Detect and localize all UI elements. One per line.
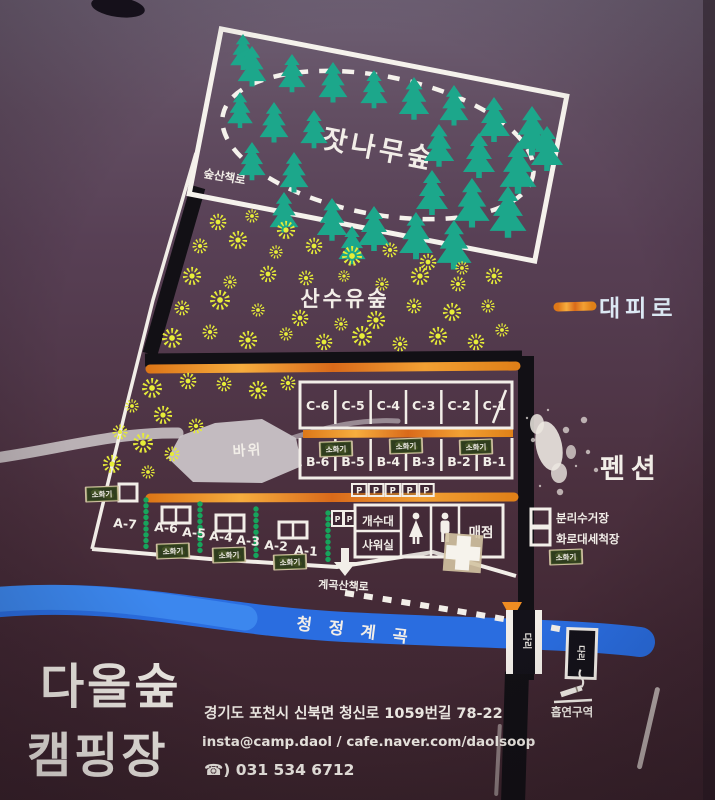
fire-extinguisher-label: 소화기 bbox=[162, 546, 183, 557]
site-label: C-5 bbox=[341, 398, 364, 413]
site-label: A-2 bbox=[264, 537, 289, 554]
black-road-top bbox=[145, 357, 522, 360]
smoking-area-label: 흡연구역 bbox=[551, 705, 593, 719]
fire-extinguisher-badge: 소화기 bbox=[459, 438, 494, 455]
fire-extinguisher-label: 소화기 bbox=[279, 557, 300, 568]
bridge-2-label: 다리 bbox=[575, 645, 587, 661]
valley-trail-label: 계곡산책로 bbox=[318, 577, 369, 594]
fire-extinguisher-label: 소화기 bbox=[218, 550, 239, 561]
site-label: B-1 bbox=[483, 454, 506, 469]
fire-extinguisher-label: 소화기 bbox=[91, 489, 112, 500]
parking-label: P bbox=[347, 515, 353, 524]
parking-label: P bbox=[356, 487, 362, 497]
evacuation-road-top bbox=[150, 366, 516, 369]
pension-label: 펜션 bbox=[600, 454, 662, 485]
parking-label: P bbox=[406, 487, 412, 497]
c-row-sites: C-6C-5C-4C-3C-2C-1 bbox=[306, 390, 506, 424]
legend-evacuation-label: 대피로 bbox=[599, 296, 677, 322]
fire-extinguisher-label: 소화기 bbox=[555, 552, 576, 563]
hedge-dots bbox=[325, 510, 330, 562]
site-label: C-2 bbox=[447, 398, 470, 413]
campground-map-board: 바위 잣나무숲 숲산책로 산수유숲 대피로 C-6C-5C-4C-3C-2C-1… bbox=[0, 0, 715, 800]
site-label: B-3 bbox=[412, 454, 435, 469]
fire-extinguisher-badge: 소화기 bbox=[319, 440, 354, 457]
site-label: C-3 bbox=[412, 398, 435, 413]
parking-label: P bbox=[335, 515, 341, 524]
fire-extinguisher-badge: 소화기 bbox=[389, 437, 424, 454]
fire-extinguisher-badge: 소화기 bbox=[156, 542, 191, 559]
rock-label: 바위 bbox=[232, 442, 263, 460]
grill-washing-label: 화로대세척장 bbox=[556, 532, 620, 546]
fire-extinguisher-badge: 소화기 bbox=[273, 553, 308, 570]
parking-label: P bbox=[390, 487, 396, 497]
shower-label: 샤워실 bbox=[362, 538, 394, 552]
site-label: C-4 bbox=[377, 398, 401, 413]
evacuation-road-cb bbox=[303, 433, 513, 434]
site-label: A-3 bbox=[236, 532, 261, 549]
campground-map: 바위 잣나무숲 숲산책로 산수유숲 대피로 C-6C-5C-4C-3C-2C-1… bbox=[0, 0, 715, 800]
fire-extinguisher-badge: 소화기 bbox=[85, 485, 120, 502]
site-label: A-4 bbox=[209, 528, 234, 545]
legend-evacuation-bar bbox=[558, 306, 592, 307]
site-label: A-5 bbox=[182, 524, 207, 541]
sink-label: 개수대 bbox=[362, 514, 394, 528]
sansuyu-forest-label: 산수유숲 bbox=[300, 287, 389, 311]
parking-row: PPPPP bbox=[352, 484, 434, 497]
title-line1: 다올숲 bbox=[40, 659, 181, 715]
fire-extinguisher-label: 소화기 bbox=[325, 444, 346, 455]
evacuation-road-a bbox=[150, 497, 514, 498]
parking-pair: PP bbox=[332, 511, 355, 526]
site-label: A-7 bbox=[113, 515, 138, 532]
board-edge bbox=[703, 0, 715, 800]
bridge-1: 다리 bbox=[506, 610, 542, 674]
site-label: C-1 bbox=[483, 398, 506, 413]
contact-line: insta@camp.daol / cafe.naver.com/daolsoo… bbox=[202, 734, 536, 750]
fire-extinguisher-badge: 소화기 bbox=[549, 548, 584, 565]
site-label: A-6 bbox=[154, 519, 179, 536]
bridge-2: 다리 bbox=[566, 629, 597, 679]
site-label: C-6 bbox=[306, 398, 330, 413]
hedge-dots bbox=[143, 497, 148, 549]
bridge-1-label: 다리 bbox=[521, 633, 533, 650]
phone-line: ☎) 031 534 6712 bbox=[204, 761, 354, 779]
hedge-dots bbox=[253, 506, 258, 558]
title-line2: 캠핑장 bbox=[27, 728, 168, 784]
address-line: 경기도 포천시 신북면 청신로 1059번길 78-22 bbox=[204, 704, 503, 722]
parking-label: P bbox=[373, 487, 379, 497]
fire-extinguisher-label: 소화기 bbox=[395, 441, 416, 452]
recycling-label: 분리수거장 bbox=[556, 511, 609, 525]
first-aid-area bbox=[443, 533, 484, 574]
site-label: B-2 bbox=[447, 454, 470, 469]
fire-extinguisher-badge: 소화기 bbox=[212, 546, 247, 563]
parking-label: P bbox=[423, 487, 429, 497]
fire-extinguisher-label: 소화기 bbox=[465, 442, 486, 453]
site-label: B-4 bbox=[377, 454, 401, 469]
